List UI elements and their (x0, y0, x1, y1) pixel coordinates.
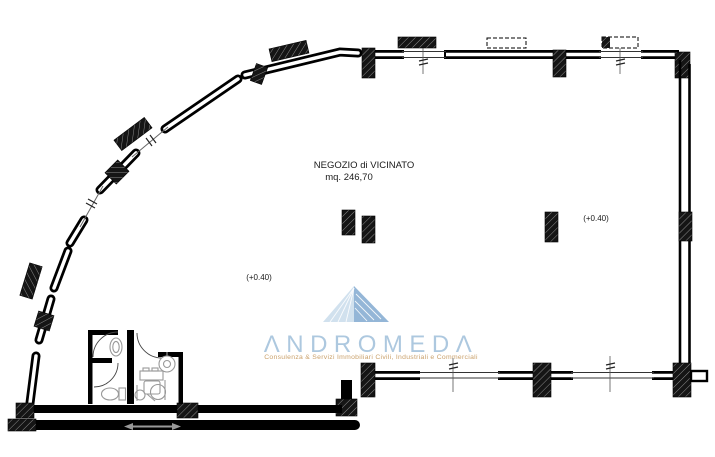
bottom-pillar (16, 403, 34, 418)
interior-pillars (342, 210, 558, 243)
toilet (102, 388, 119, 400)
floor-plan-svg: ΛNDROMEDΛ Consulenza & Servizi Immobilia… (0, 0, 715, 457)
right-wall (679, 60, 692, 368)
elevation-label-left: (+0.40) (246, 273, 272, 282)
room-label: NEGOZIO di VICINATO (314, 160, 414, 171)
wc-block (88, 330, 183, 404)
bottom-wall (8, 380, 360, 431)
watermark-logo: ΛNDROMEDΛ Consulenza & Servizi Immobilia… (264, 286, 479, 361)
elevation-label-right: (+0.40) (583, 214, 609, 223)
window-tick-icon (419, 59, 625, 65)
accessible-wc-fixture (135, 368, 166, 401)
external-marker-dashed (487, 38, 526, 48)
top-wall (362, 37, 690, 78)
right-wall-pillar (679, 212, 692, 241)
external-marker (398, 37, 436, 48)
lower-right-wall (361, 356, 707, 397)
window-tick-icon (449, 363, 615, 369)
facade-pillars (34, 63, 268, 330)
corner-stub (691, 371, 707, 381)
brand-tagline: Consulenza & Servizi Immobiliari Civili,… (264, 354, 478, 361)
logo-triangle-icon (323, 286, 389, 322)
external-marker (602, 37, 610, 48)
floor-plan-page: ΛNDROMEDΛ Consulenza & Servizi Immobilia… (0, 0, 715, 457)
bottom-pillar (8, 419, 36, 431)
area-label: mq. 246,70 (325, 172, 373, 183)
bottom-pillar (177, 403, 198, 418)
